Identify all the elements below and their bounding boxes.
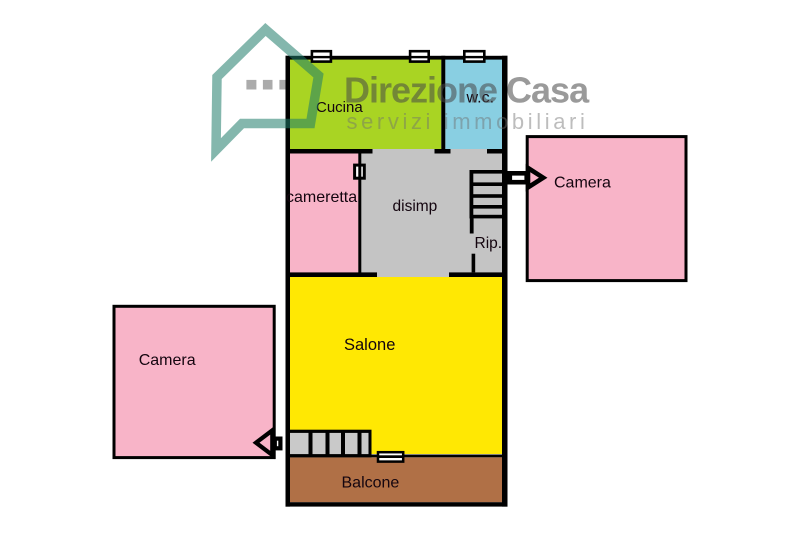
- svg-text:Rip.: Rip.: [475, 235, 503, 252]
- svg-text:cameretta: cameretta: [286, 189, 357, 206]
- svg-text:Salone: Salone: [344, 336, 395, 354]
- svg-text:Direzione Casa: Direzione Casa: [344, 70, 590, 111]
- svg-text:Camera: Camera: [139, 352, 196, 369]
- svg-text:Balcone: Balcone: [342, 475, 400, 492]
- svg-text:servizi immobiliari: servizi immobiliari: [347, 109, 589, 134]
- svg-text:disimp: disimp: [393, 198, 438, 215]
- svg-text:Camera: Camera: [554, 174, 611, 191]
